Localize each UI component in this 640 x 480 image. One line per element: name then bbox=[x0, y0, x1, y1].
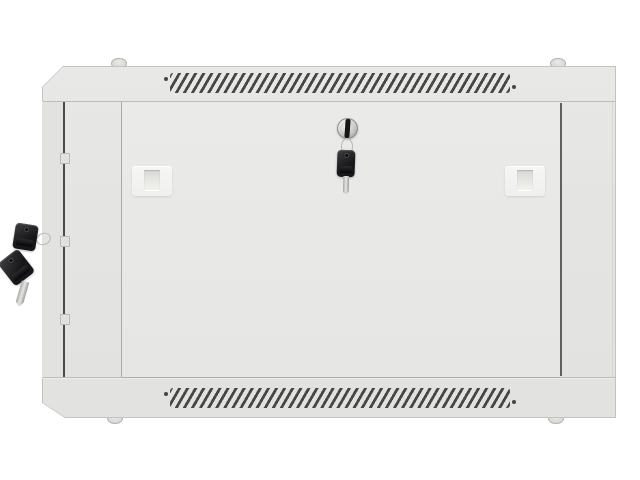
door-latch-right bbox=[505, 166, 545, 196]
right-panel-seam bbox=[612, 102, 613, 377]
product-photo bbox=[0, 0, 640, 480]
latch-recess bbox=[517, 170, 533, 191]
top-vent-grille bbox=[170, 73, 510, 93]
door-key bbox=[337, 150, 356, 178]
spare-key-lower bbox=[0, 248, 35, 286]
door-latch-left bbox=[132, 166, 172, 196]
bottom-vent-grille bbox=[170, 388, 510, 408]
hinge-top bbox=[60, 153, 70, 164]
rack-cabinet bbox=[42, 66, 616, 418]
spare-key-upper bbox=[12, 222, 39, 251]
latch-recess bbox=[144, 170, 160, 191]
door-gap-right bbox=[560, 103, 562, 376]
cylinder-lock bbox=[337, 118, 358, 139]
door-gap-left bbox=[121, 102, 122, 377]
hinge-bottom bbox=[60, 314, 70, 325]
hinge-middle bbox=[60, 236, 70, 247]
